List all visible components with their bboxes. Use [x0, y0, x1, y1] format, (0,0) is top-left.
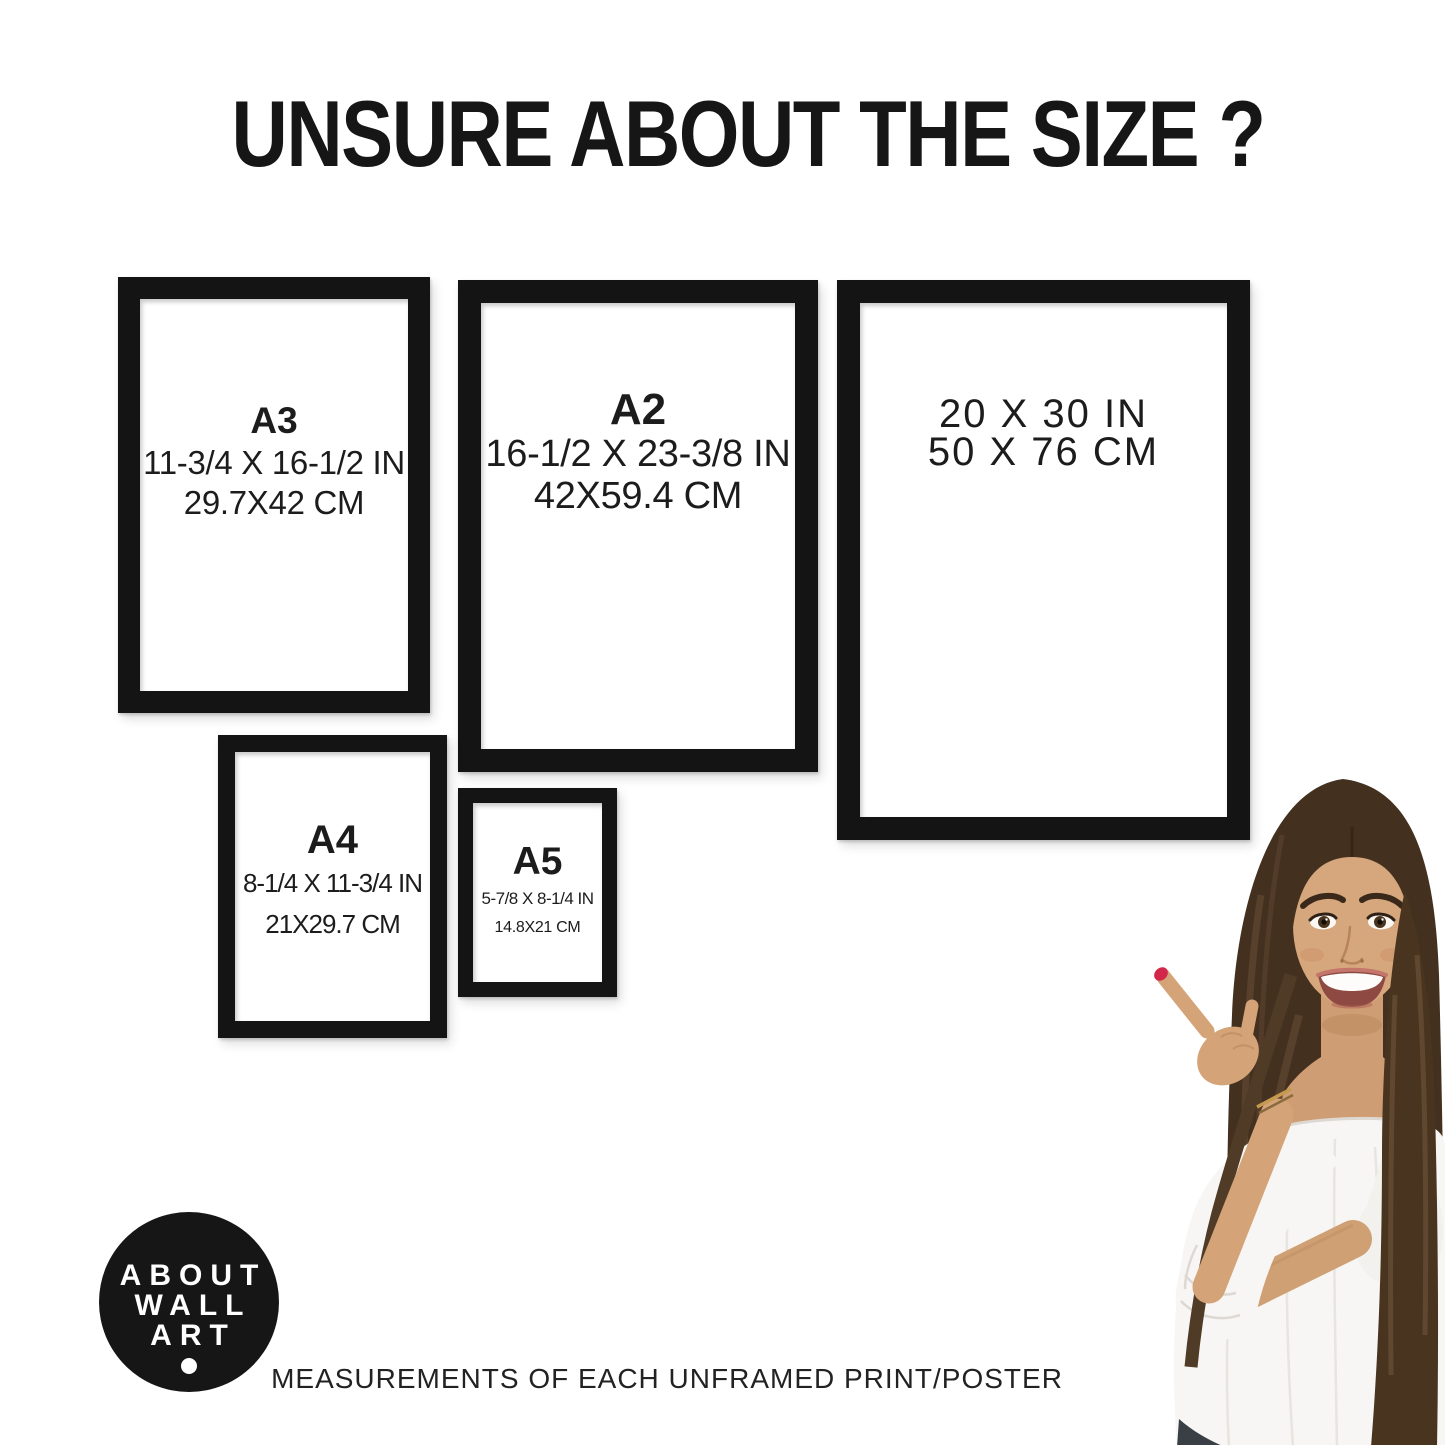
frame-a5: A5 5-7/8 X 8-1/4 IN 14.8X21 CM	[458, 788, 617, 997]
frame-a4-inches: 8-1/4 X 11-3/4 IN	[216, 863, 450, 904]
page-title: UNSURE ABOUT THE SIZE ?	[232, 87, 1265, 181]
frame-a2-label: A2	[450, 387, 827, 433]
frame-a4: A4 8-1/4 X 11-3/4 IN 21X29.7 CM	[218, 735, 447, 1038]
woman-photo	[1085, 775, 1445, 1445]
brand-logo-line3: ART	[142, 1321, 236, 1351]
frame-a2: A2 16-1/2 X 23-3/8 IN 42X59.4 CM	[458, 280, 818, 772]
frame-20x30-cm: 50 X 76 CM	[823, 433, 1263, 471]
frame-20x30-text: 20 X 30 IN 50 X 76 CM	[823, 395, 1263, 471]
frame-a3-label: A3	[113, 399, 435, 443]
frame-a5-cm: 14.8X21 CM	[460, 915, 615, 941]
frame-20x30: 20 X 30 IN 50 X 76 CM	[837, 280, 1250, 840]
frame-a5-label: A5	[460, 841, 615, 883]
frame-a5-text: A5 5-7/8 X 8-1/4 IN 14.8X21 CM	[460, 841, 615, 941]
frame-a3-cm: 29.7X42 CM	[113, 483, 435, 523]
frame-a4-label: A4	[216, 817, 450, 863]
eye-left	[1310, 914, 1336, 929]
eye-right	[1368, 914, 1394, 929]
frame-20x30-inches: 20 X 30 IN	[823, 395, 1263, 433]
frame-a4-text: A4 8-1/4 X 11-3/4 IN 21X29.7 CM	[216, 817, 450, 945]
woman-illustration	[1151, 779, 1445, 1445]
frame-a3-text: A3 11-3/4 X 16-1/2 IN 29.7X42 CM	[113, 399, 435, 523]
footer-caption: MEASUREMENTS OF EACH UNFRAMED PRINT/POST…	[271, 1362, 1063, 1396]
frame-a5-inches: 5-7/8 X 8-1/4 IN	[460, 883, 615, 915]
size-guide-infographic: { "title": "UNSURE ABOUT THE SIZE ?", "f…	[0, 0, 1445, 1445]
frame-a3: A3 11-3/4 X 16-1/2 IN 29.7X42 CM	[118, 277, 430, 713]
brand-logo: ABOUT WALL ART	[99, 1212, 279, 1392]
frame-a4-cm: 21X29.7 CM	[216, 904, 450, 945]
brand-logo-line2: WALL	[127, 1291, 252, 1321]
logo-dot-icon	[181, 1358, 197, 1374]
frame-a2-text: A2 16-1/2 X 23-3/8 IN 42X59.4 CM	[450, 387, 827, 517]
frame-a2-cm: 42X59.4 CM	[450, 475, 827, 517]
brand-logo-line1: ABOUT	[112, 1261, 267, 1291]
frame-a2-inches: 16-1/2 X 23-3/8 IN	[450, 433, 827, 475]
frame-a3-inches: 11-3/4 X 16-1/2 IN	[113, 443, 435, 483]
